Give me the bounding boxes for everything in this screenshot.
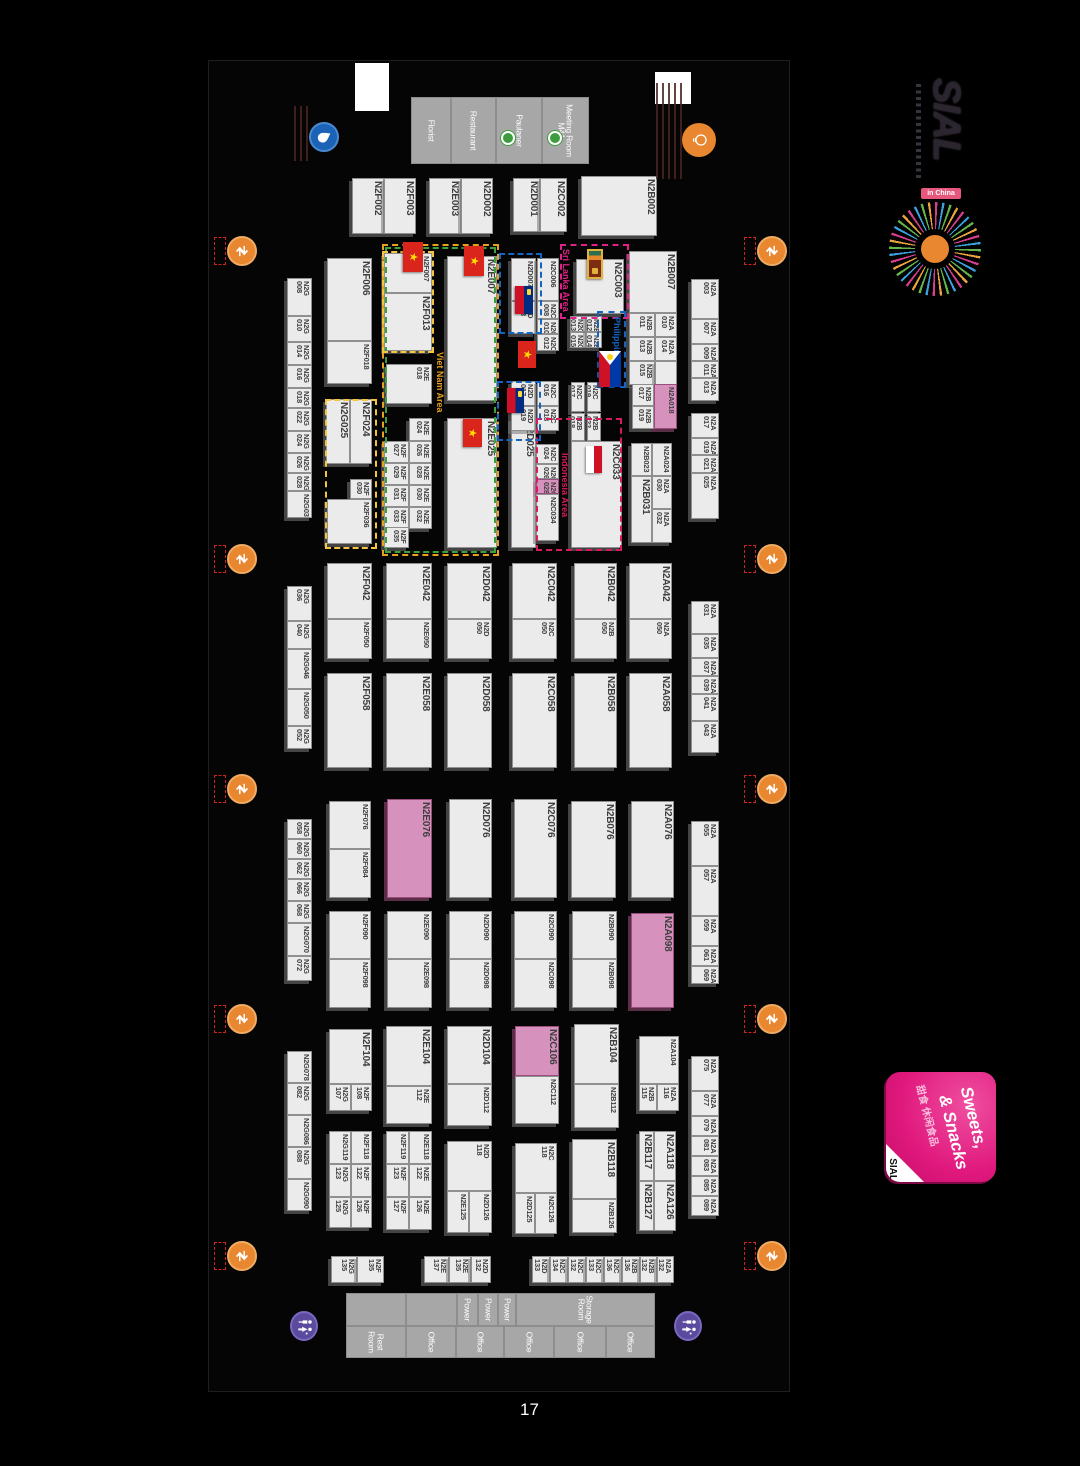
booth-label: N2E025: [485, 421, 495, 456]
booth-label: N2B023: [643, 446, 650, 472]
booth-label: N2D098: [483, 962, 490, 988]
booth-label: N2C 136: [606, 1259, 620, 1273]
booth-label: N2G070: [303, 926, 310, 953]
booth-n2d-132: N2D 132: [471, 1256, 491, 1283]
booth-n2f-027: N2F 027: [384, 441, 409, 463]
booth-label: N2G025: [338, 402, 348, 438]
booth-n2g030: N2G030: [287, 491, 312, 518]
booth-n2b-018: N2B 018: [571, 413, 585, 441]
booth-n2f084: N2F084: [329, 849, 371, 898]
booth-label: N2A 083: [703, 1159, 717, 1173]
booth-n2g-024: N2G 024: [287, 431, 312, 453]
booth-label: N2A 021: [703, 458, 717, 472]
booth-label: N2A104: [670, 1039, 677, 1065]
booth-label: N2B 136: [624, 1259, 638, 1273]
booth-n2b098: N2B098: [572, 959, 617, 1008]
escalator-icon: [227, 236, 257, 266]
booth-n2e076: N2E076: [387, 799, 432, 898]
booth-label: N2B118: [605, 1142, 615, 1177]
booth-label: N2D104: [480, 1029, 490, 1065]
booth-n2c-010: N2C 010: [537, 319, 559, 334]
booth-n2c-013: N2C 013: [570, 316, 586, 332]
booth-label: N2E 030: [416, 488, 430, 502]
booth-n2g-008: N2G 008: [287, 278, 312, 316]
booth-label: N2G119: [342, 1134, 349, 1160]
booth-n2f003: N2F003: [384, 178, 416, 234]
booth-label: N2A 010: [661, 316, 675, 330]
booth-n2b126: N2B126: [572, 1199, 617, 1233]
booth-label: N2B 022: [587, 416, 599, 430]
booth-label: N2A 059: [703, 919, 717, 933]
booth-label: N2B007: [665, 254, 675, 290]
booth-label: N2C034: [550, 497, 557, 523]
booth-n2f058: N2F058: [327, 673, 372, 768]
booth-label: N2F084: [362, 852, 369, 877]
booth-label: N2F036: [363, 502, 370, 527]
booth-label: N2A 030: [656, 479, 670, 493]
booth-n2e090: N2E090: [387, 911, 432, 959]
booth-n2d058: N2D058: [447, 673, 492, 768]
booth-label: N2G 052: [296, 729, 310, 744]
booth-n2g-060: N2G 060: [287, 839, 312, 859]
facility-office: Office: [456, 1326, 504, 1358]
booth-label: N2C 008: [543, 304, 557, 318]
booth-n2a104: N2A104: [639, 1036, 679, 1084]
booth-n2a-035: N2A 035: [691, 634, 719, 658]
booth-n2e-026: N2E 026: [409, 441, 432, 463]
booth-n2b-022: N2B 022: [587, 413, 601, 441]
booth-label: N2G030: [303, 494, 310, 518]
booth-n2e-135: N2E 135: [449, 1256, 471, 1283]
booth-label: N2A 025: [703, 476, 717, 490]
facility-restaurant: Restaurant: [451, 97, 496, 164]
booth-label: N2D 133: [534, 1259, 548, 1273]
booth-label: N2G 082: [296, 1086, 310, 1101]
stairs-outline: [214, 1242, 226, 1270]
vn-flag-icon: [518, 341, 536, 368]
booth-label: N2A 014: [661, 340, 675, 354]
booth-n2c034: N2C034: [536, 494, 559, 541]
booth-n2g-018: N2G 018: [287, 388, 312, 408]
booth-n2c076: N2C076: [514, 799, 557, 898]
booth-n2c042: N2C042: [512, 563, 557, 619]
booth-label: N2G 024: [296, 434, 310, 449]
booth-n2e098: N2E098: [387, 959, 432, 1008]
booth-n2d001: N2D001: [513, 178, 540, 232]
booth-label: N2B076: [604, 804, 614, 840]
booth-n2a-014: N2A 014: [655, 337, 677, 361]
restroom-icon: [290, 1311, 318, 1341]
booth-n2c126: N2C126: [535, 1193, 557, 1234]
booth-label: N2G 123: [335, 1167, 349, 1182]
booth-n2g-052: N2G 052: [287, 726, 312, 749]
booth-n2a-011: N2A 011: [691, 361, 719, 378]
booth-label: N2C 015: [570, 335, 584, 348]
booth-label: N2G 107: [335, 1087, 349, 1102]
stairs-outline: [214, 1005, 226, 1033]
booth-label: N2B098: [608, 962, 615, 988]
booth-n2e-030: N2E 030: [409, 485, 432, 507]
booth-n2b-115: N2B 115: [639, 1084, 657, 1111]
booth-label: N2F 122: [356, 1167, 370, 1181]
booth-label: N2G086: [303, 1118, 310, 1145]
sial-tagline-text: [916, 84, 921, 180]
booth-n2e-018: N2E 018: [386, 364, 432, 404]
booth-n2a-025: N2A 025: [691, 473, 719, 519]
booth-label: N2E125: [460, 1194, 467, 1220]
booth-label: N2B 015: [639, 364, 653, 378]
booth-n2a098: N2A098: [631, 913, 674, 1008]
escalator-icon: [757, 774, 787, 804]
booth-label: N2D002: [481, 181, 491, 217]
sial-wordmark: SIAL: [924, 78, 967, 196]
booth-n2f098: N2F098: [329, 959, 371, 1008]
badge-brand: SIAL: [887, 1158, 898, 1181]
li-flag-icon: [515, 286, 533, 314]
booth-label: N2C 018: [543, 409, 557, 423]
booth-label: N2E 122: [416, 1167, 430, 1181]
booth-label: N2A 017: [703, 416, 717, 430]
booth-label: N2C042: [545, 566, 555, 602]
booth-label: N2A 009: [703, 347, 717, 361]
booth-label: N2E 032: [416, 510, 430, 524]
booth-n2a-085: N2A 085: [691, 1176, 719, 1196]
booth-n2c106: N2C106: [515, 1026, 559, 1076]
booth-n2a-059: N2A 059: [691, 916, 719, 946]
booth-n2b-019: N2B 019: [632, 406, 654, 429]
facility-office: Office: [504, 1326, 554, 1358]
booth-label: N2A 041: [703, 697, 717, 711]
booth-label: N2E098: [423, 962, 430, 988]
booth-n2a-019: N2A 019: [691, 438, 719, 455]
booth-label: Power: [484, 1294, 493, 1325]
booth-n2e007: N2E007: [447, 256, 497, 401]
booth-label: N2B 014: [586, 335, 600, 348]
booth-label: N2C058: [545, 676, 555, 712]
restroom-icon: [674, 1311, 702, 1341]
booth-n2g119: N2G119: [329, 1131, 351, 1164]
booth-label: N2C076: [545, 802, 555, 838]
booth-label: N2C 019: [587, 385, 599, 399]
booth-label: N2E 135: [455, 1259, 469, 1273]
booth-label: N2A126: [664, 1184, 674, 1220]
booth-label: N2A018: [668, 387, 675, 413]
escalator-icon: [227, 774, 257, 804]
booth-n2c090: N2C090: [514, 911, 557, 959]
booth-n2e-032: N2E 032: [409, 507, 432, 529]
booth-label: N2F 126: [356, 1200, 370, 1214]
booth-label: N2C 134: [552, 1259, 566, 1273]
booth-label: N2A 085: [703, 1179, 717, 1193]
booth-label: N2B127: [642, 1184, 652, 1220]
booth-label: Power: [503, 1294, 512, 1325]
booth-n2g-135: N2G 135: [331, 1256, 357, 1283]
booth-label: N2C 017: [571, 385, 583, 399]
booth-label: N2E042: [420, 566, 430, 601]
facility-office: Office: [406, 1326, 456, 1358]
booth-blank: [655, 361, 677, 385]
booth-label: N2F 135: [368, 1259, 382, 1273]
booth-label: N2A 031: [703, 604, 717, 618]
booth-label: N2A 061: [703, 949, 717, 963]
booth-n2c-008: N2C 008: [537, 301, 559, 319]
booth-n2b090: N2B090: [572, 911, 617, 959]
entrance-door: [355, 63, 389, 111]
booth-n2b058: N2B058: [574, 673, 617, 768]
booth-label: N2G078: [303, 1054, 310, 1081]
booth-n2a-010: N2A 010: [655, 313, 677, 337]
booth-label: N2G050: [303, 692, 310, 719]
booth-label: N2B 017: [638, 387, 652, 401]
booth-label: N2A058: [660, 676, 670, 712]
booth-n2b127: N2B127: [639, 1181, 654, 1231]
escalator-icon: [757, 236, 787, 266]
lightbulb-icon: [682, 123, 716, 157]
booth-label: N2F 029: [393, 466, 407, 480]
booth-label: N2B 018: [571, 416, 583, 430]
booth-label: Office: [427, 1327, 436, 1357]
booth-label: N2G 036: [296, 589, 310, 604]
booth-label: Office: [576, 1327, 585, 1357]
booth-label: Office: [525, 1327, 534, 1357]
booth-label: N2E 018: [416, 367, 430, 381]
booth-n2f-126: N2F 126: [351, 1197, 372, 1228]
booth-n2g-016: N2G 016: [287, 365, 312, 388]
facility-storage-room: Storage Room: [516, 1293, 655, 1326]
booth-label: N2C 024: [543, 447, 557, 461]
booth-n2e-028: N2E 028: [409, 463, 432, 485]
booth-label: N2A 032: [656, 512, 670, 526]
booth-label: N2F 030: [356, 482, 370, 496]
booth-n2e-137: N2E 137: [424, 1256, 449, 1283]
booth-n2e-126: N2E 126: [409, 1197, 432, 1230]
booth-n2e003: N2E003: [429, 178, 461, 234]
booth-label: N2A 069: [703, 969, 717, 983]
booth-n2e058: N2E058: [386, 673, 432, 768]
booth-n2c098: N2C098: [514, 959, 557, 1008]
booth-n2e104: N2E104: [386, 1026, 432, 1086]
booth-n2a024: N2A024: [652, 443, 672, 476]
booth-label: N2A 057: [703, 869, 717, 883]
booth-n2f090: N2F090: [329, 911, 371, 959]
ph-flag-icon: [599, 351, 621, 387]
booth-n2f-108: N2F 108: [351, 1084, 372, 1111]
vn-flag-icon: [464, 246, 484, 276]
booth-n2a126: N2A126: [654, 1181, 676, 1231]
facility-florist: Florist: [411, 97, 451, 164]
booth-label: Restaurant: [469, 98, 478, 163]
escalator-icon: [757, 1241, 787, 1271]
starburst-icon: [889, 202, 981, 296]
booth-n2f-122: N2F 122: [351, 1164, 372, 1197]
lk-flag-icon: [587, 249, 603, 279]
booth-n2f042: N2F042: [327, 563, 372, 619]
booth-n2a-089: N2A 089: [691, 1196, 719, 1216]
booth-label: N2G 014: [296, 345, 310, 360]
facility-office: Office: [606, 1326, 655, 1358]
booth-label: N2F090: [362, 914, 369, 939]
booth-label: N2B002: [645, 179, 655, 215]
booth-label: N2B 132: [641, 1259, 655, 1273]
booth-n2a058: N2A058: [629, 673, 672, 768]
booth-label: N2A 019: [703, 441, 717, 455]
booth-n2a-039: N2A 039: [691, 676, 719, 694]
stairs-outline: [214, 545, 226, 573]
booth-label: N2B 050: [601, 622, 615, 636]
booth-label: N2C112: [550, 1079, 557, 1105]
booth-label: N2B090: [608, 914, 615, 940]
booth-n2c-015: N2C 015: [570, 332, 586, 348]
booth-n2g-028: N2G 028: [287, 473, 312, 491]
booth-n2e125: N2E125: [447, 1191, 469, 1233]
stairs-outline: [744, 775, 756, 803]
booth-label: N2A076: [662, 804, 672, 840]
booth-n2g-022: N2G 022: [287, 408, 312, 431]
region-label: Sri Lanka Area: [561, 249, 571, 312]
facility-blank: [346, 1293, 406, 1326]
booth-label: N2G 028: [296, 476, 310, 491]
booth-n2c-012: N2C 012: [537, 334, 559, 351]
booth-n2d090: N2D090: [449, 911, 492, 959]
booth-n2e-122: N2E 122: [409, 1164, 432, 1197]
booth-label: N2E090: [423, 914, 430, 940]
booth-label: N2G046: [303, 652, 310, 679]
booth-n2a-032: N2A 032: [652, 509, 672, 543]
booth-n2b-013: N2B 013: [629, 337, 655, 361]
booth-label: N2G090: [303, 1182, 310, 1209]
booth-label: N2G 026: [296, 456, 310, 471]
booth-label: N2C006: [550, 261, 557, 287]
booth-label: N2A118: [664, 1134, 674, 1169]
booth-n2b031: N2B031: [631, 476, 652, 543]
booth-n2c002: N2C002: [540, 178, 567, 232]
booth-label: N2C 118: [541, 1146, 555, 1160]
booth-label: N2G 008: [296, 281, 310, 296]
booth-label: N2A 007: [703, 322, 717, 336]
booth-n2f024: N2F024: [350, 399, 372, 464]
facility-power: Power: [478, 1293, 498, 1326]
booth-label: N2B 019: [638, 409, 652, 423]
booth-n2c112: N2C112: [515, 1076, 559, 1124]
booth-label: N2A024: [663, 446, 670, 472]
booth-n2a018: N2A018: [654, 384, 677, 429]
booth-label: N2D 132: [475, 1259, 489, 1273]
brand-logo-icon: [548, 131, 562, 145]
booth-label: N2G 135: [341, 1259, 355, 1274]
booth-label: N2A 050: [656, 622, 670, 636]
booth-n2a-083: N2A 083: [691, 1156, 719, 1176]
booth-n2f-127: N2F 127: [386, 1197, 409, 1230]
booth-label: N2F076: [362, 804, 369, 829]
booth-n2a-079: N2A 079: [691, 1116, 719, 1136]
booth-n2d126: N2D126: [469, 1191, 492, 1233]
booth-label: N2F118: [363, 1134, 370, 1159]
booth-n2a-013: N2A 013: [691, 378, 719, 401]
facility-office: Office: [554, 1326, 606, 1358]
booth-label: N2F003: [404, 181, 414, 215]
booth-n2d076: N2D076: [449, 799, 492, 898]
booth-n2f119: N2F119: [386, 1131, 409, 1164]
sweets-snacks-badge-face: Sweets, & Snacks 甜食 休闲食品 SIAL: [886, 1072, 996, 1182]
stairs-outline: [214, 237, 226, 265]
booth-n2g-014: N2G 014: [287, 342, 312, 365]
booth-n2c-136: N2C 136: [604, 1256, 622, 1283]
booth-n2b118: N2B118: [572, 1139, 617, 1199]
booth-n2d-050: N2D 050: [447, 619, 492, 659]
booth-n2c-132: N2C 132: [568, 1256, 586, 1283]
booth-n2d098: N2D098: [449, 959, 492, 1008]
facility-rest-room: Rest Room: [346, 1326, 406, 1358]
booth-n2c-118: N2C 118: [515, 1143, 557, 1193]
booth-label: N2A 077: [703, 1094, 717, 1108]
booth-n2e-024: N2E 024: [409, 418, 432, 441]
booth-label: N2A 055: [703, 824, 717, 838]
booth-n2b112: N2B112: [574, 1084, 619, 1128]
booth-label: N2F119: [400, 1134, 407, 1159]
booth-n2f-029: N2F 029: [384, 463, 409, 485]
stairs-outline: [744, 1005, 756, 1033]
booth-label: N2F013: [420, 296, 430, 330]
booth-n2f050: N2F050: [327, 619, 372, 659]
booth-n2c-133: N2C 133: [586, 1256, 604, 1283]
booth-label: N2E118: [423, 1134, 430, 1160]
booth-label: N2E007: [485, 259, 495, 294]
sial-logo: SIAL in China: [893, 70, 1005, 310]
booth-label: Office: [476, 1327, 485, 1357]
booth-label: N2G 060: [296, 842, 310, 857]
booth-label: Meeting Room M41: [557, 98, 574, 163]
facility-power: Power: [457, 1293, 478, 1326]
booth-label: N2D007: [527, 261, 534, 287]
booth-label: N2G 040: [296, 624, 310, 639]
booth-n2c006: N2C006: [537, 258, 559, 301]
booth-n2d104: N2D104: [447, 1026, 492, 1084]
booth-label: N2F 108: [356, 1087, 370, 1101]
booth-n2a-132: N2A 132: [657, 1256, 674, 1283]
booth-label: N2C 010: [543, 322, 557, 334]
booth-n2f076: N2F076: [329, 801, 371, 849]
booth-label: N2F098: [362, 962, 369, 987]
booth-label: N2A 003: [703, 282, 717, 296]
vn-flag-icon: [403, 242, 423, 272]
booth-label: N2A 079: [703, 1119, 717, 1133]
booth-n2e042: N2E042: [386, 563, 432, 619]
booth-n2a-116: N2A 116: [657, 1084, 679, 1111]
booth-label: N2E104: [420, 1029, 430, 1064]
booth-n2d025: N2D025: [511, 418, 536, 548]
booth-n2b076: N2B076: [571, 801, 616, 898]
booth-n2f104: N2F104: [329, 1029, 372, 1084]
booth-label: N2A 089: [703, 1199, 717, 1213]
booth-label: N2B 013: [639, 340, 653, 354]
booth-label: N2F042: [360, 566, 370, 600]
booth-n2a-041: N2A 041: [691, 694, 719, 721]
booth-n2a042: N2A042: [629, 563, 672, 619]
booth-n2d112: N2D112: [447, 1084, 492, 1126]
booth-label: N2B126: [608, 1202, 615, 1228]
booth-label: N2F 033: [393, 510, 407, 524]
booth-label: N2A 011: [703, 364, 717, 378]
booth-n2c-028: N2C 028: [536, 479, 559, 494]
booth-n2c-018: N2C 018: [537, 406, 559, 431]
booth-n2g-058: N2G 058: [287, 819, 312, 839]
booth-n2a-061: N2A 061: [691, 946, 719, 966]
booth-n2g-068: N2G 068: [287, 901, 312, 923]
booth-n2g050: N2G050: [287, 689, 312, 726]
booth-label: N2F050: [363, 622, 370, 647]
hall-map: Viet Nam AreaSri Lanka AreaPhilippines A…: [208, 60, 790, 1392]
booth-n2g046: N2G046: [287, 649, 312, 689]
